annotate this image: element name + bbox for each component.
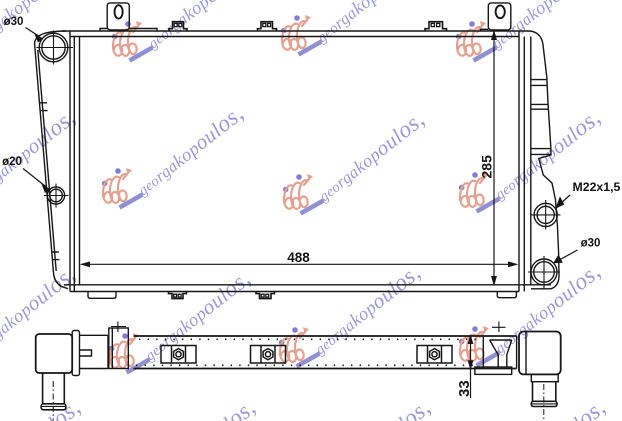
svg-text:ø30: ø30: [581, 238, 601, 250]
svg-text:285: 285: [479, 155, 495, 179]
svg-text:ø20: ø20: [2, 156, 22, 168]
svg-text:georgakopoulos,: georgakopoulos,: [493, 394, 611, 421]
svg-text:georgakopoulos,: georgakopoulos,: [143, 394, 261, 421]
svg-text:georgakopoulos,: georgakopoulos,: [318, 394, 436, 421]
svg-text:M22x1,5: M22x1,5: [573, 180, 621, 194]
svg-text:ø30: ø30: [4, 16, 24, 28]
svg-text:33: 33: [456, 380, 473, 397]
svg-text:488: 488: [287, 250, 310, 265]
